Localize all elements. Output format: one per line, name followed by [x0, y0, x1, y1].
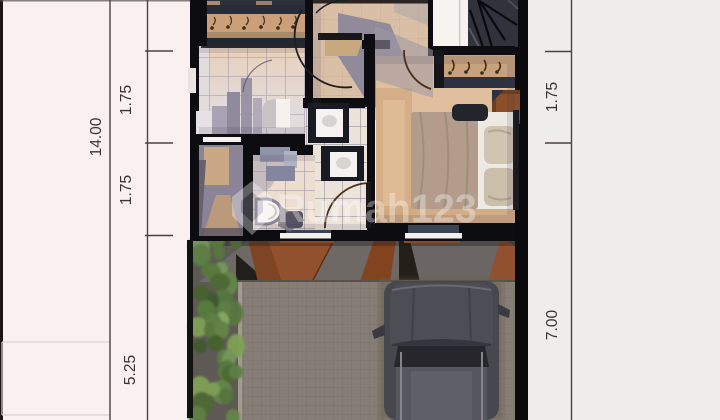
svg-text:1.75: 1.75 — [544, 82, 561, 112]
svg-text:1.75: 1.75 — [118, 85, 135, 115]
svg-text:Rumah123: Rumah123 — [277, 187, 477, 231]
svg-text:1.75: 1.75 — [118, 175, 135, 205]
svg-text:14.00: 14.00 — [88, 117, 105, 156]
svg-text:5.25: 5.25 — [122, 355, 139, 385]
svg-text:7.00: 7.00 — [544, 310, 561, 341]
